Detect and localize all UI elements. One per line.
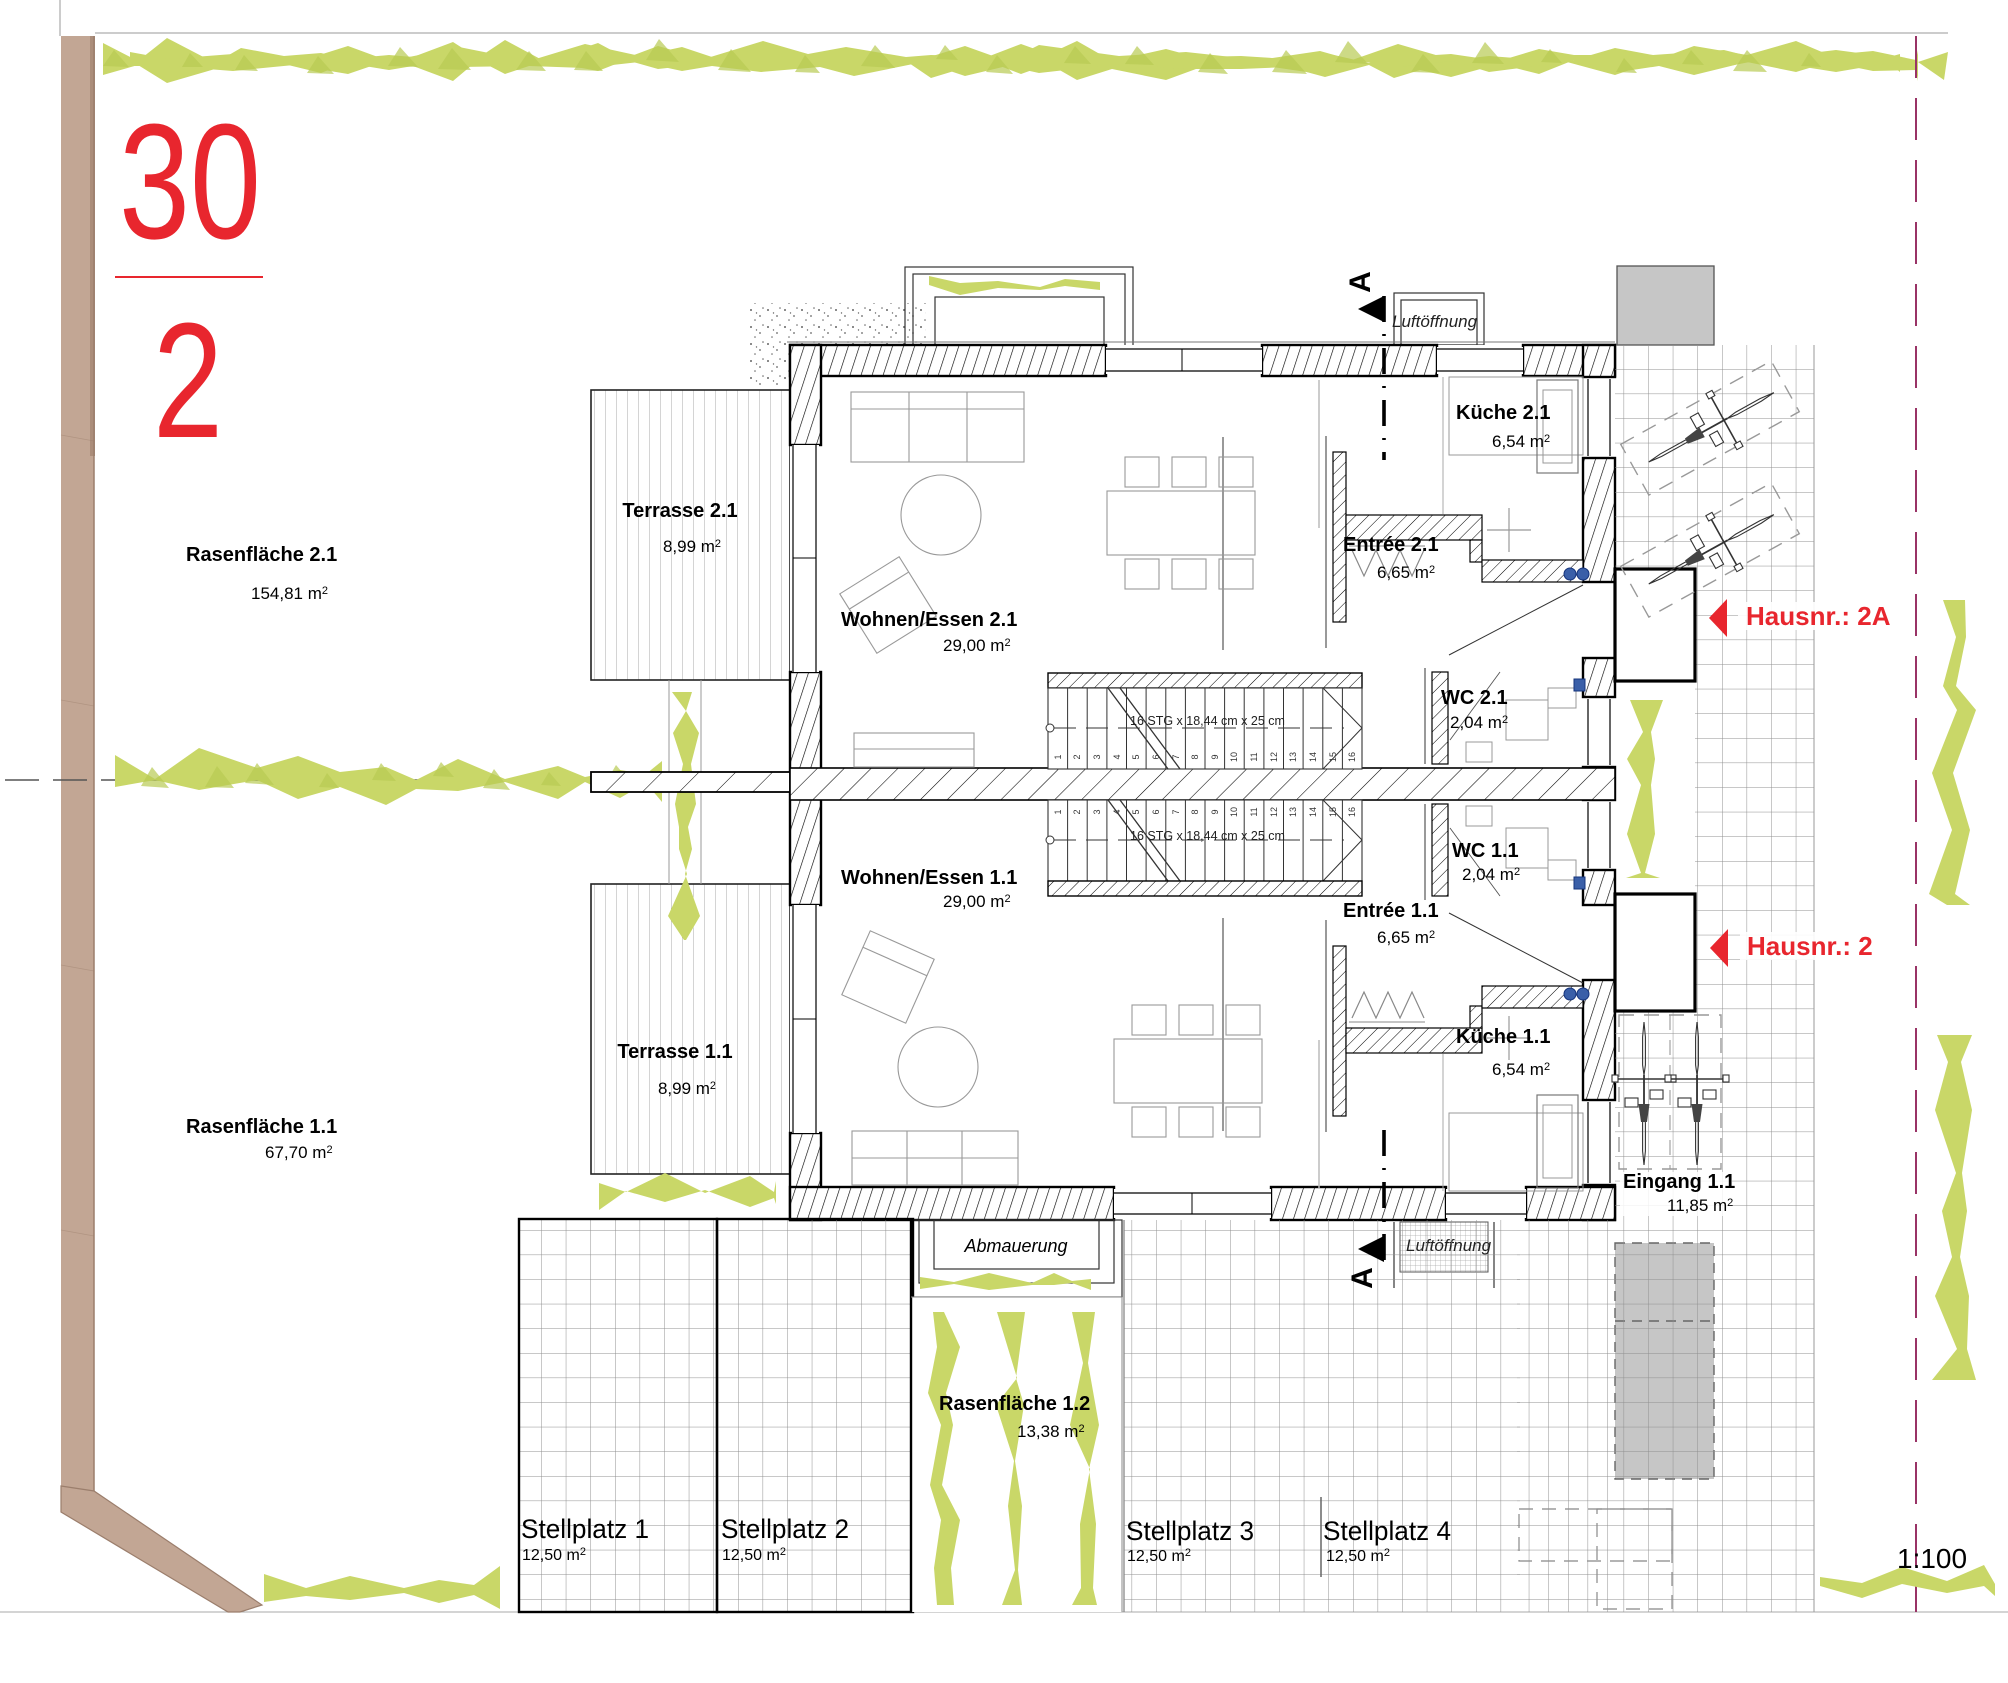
svg-text:6,54 m2: 6,54 m2: [1492, 1060, 1550, 1079]
svg-text:9: 9: [1210, 754, 1220, 759]
svg-text:A: A: [1344, 271, 1377, 293]
svg-text:3: 3: [1092, 754, 1102, 759]
svg-text:12,50 m2: 12,50 m2: [522, 1546, 586, 1564]
svg-text:14: 14: [1308, 807, 1318, 817]
svg-text:Wohnen/Essen 2.1: Wohnen/Essen 2.1: [841, 609, 1017, 631]
svg-text:Küche 1.1: Küche 1.1: [1456, 1026, 1550, 1048]
svg-text:2: 2: [153, 289, 223, 472]
svg-text:14: 14: [1308, 752, 1318, 762]
svg-text:6,65 m2: 6,65 m2: [1377, 563, 1435, 582]
svg-text:Stellplatz 4: Stellplatz 4: [1323, 1516, 1451, 1546]
svg-text:Wohnen/Essen 1.1: Wohnen/Essen 1.1: [841, 867, 1017, 889]
svg-text:8: 8: [1190, 754, 1200, 759]
svg-text:Hausnr.: 2A: Hausnr.: 2A: [1746, 601, 1891, 631]
svg-text:30: 30: [119, 90, 261, 273]
svg-text:11,85 m2: 11,85 m2: [1667, 1196, 1733, 1215]
svg-text:5: 5: [1131, 809, 1141, 814]
svg-text:2,04 m2: 2,04 m2: [1450, 713, 1508, 732]
svg-text:8,99 m2: 8,99 m2: [663, 537, 721, 556]
svg-text:16 STG x 18,44 cm x 25 cm: 16 STG x 18,44 cm x 25 cm: [1130, 714, 1285, 728]
svg-text:2: 2: [1072, 809, 1082, 814]
svg-text:7: 7: [1171, 809, 1181, 814]
svg-text:6,65 m2: 6,65 m2: [1377, 928, 1435, 947]
svg-text:15: 15: [1328, 807, 1338, 817]
svg-text:1:100: 1:100: [1897, 1543, 1967, 1574]
svg-text:3: 3: [1092, 809, 1102, 814]
svg-text:Stellplatz 1: Stellplatz 1: [521, 1514, 649, 1544]
svg-text:12: 12: [1269, 752, 1279, 762]
svg-text:6,54 m2: 6,54 m2: [1492, 432, 1550, 451]
svg-text:Rasenfläche 1.2: Rasenfläche 1.2: [939, 1393, 1090, 1415]
svg-text:Abmauerung: Abmauerung: [963, 1236, 1067, 1256]
svg-text:2,04 m2: 2,04 m2: [1462, 865, 1520, 884]
svg-text:Hausnr.: 2: Hausnr.: 2: [1747, 931, 1873, 961]
svg-text:11: 11: [1249, 807, 1259, 816]
svg-text:67,70 m2: 67,70 m2: [265, 1143, 333, 1162]
svg-text:Stellplatz 2: Stellplatz 2: [721, 1514, 849, 1544]
svg-text:10: 10: [1229, 752, 1239, 762]
svg-text:Rasenfläche 2.1: Rasenfläche 2.1: [186, 544, 337, 566]
svg-text:8: 8: [1190, 809, 1200, 814]
svg-text:4: 4: [1112, 754, 1122, 759]
svg-text:1: 1: [1053, 754, 1063, 759]
svg-text:15: 15: [1328, 752, 1338, 762]
svg-text:1: 1: [1053, 809, 1063, 814]
svg-text:12,50 m2: 12,50 m2: [1127, 1547, 1191, 1565]
svg-text:8,99 m2: 8,99 m2: [658, 1079, 716, 1098]
svg-text:12,50 m2: 12,50 m2: [1326, 1547, 1390, 1565]
svg-text:29,00 m2: 29,00 m2: [943, 636, 1011, 655]
svg-text:Terrasse 1.1: Terrasse 1.1: [617, 1041, 732, 1063]
svg-text:29,00 m2: 29,00 m2: [943, 892, 1011, 911]
svg-text:2: 2: [1072, 754, 1082, 759]
svg-text:Rasenfläche 1.1: Rasenfläche 1.1: [186, 1116, 337, 1138]
svg-text:Küche 2.1: Küche 2.1: [1456, 402, 1550, 424]
svg-text:10: 10: [1229, 807, 1239, 817]
svg-text:9: 9: [1210, 809, 1220, 814]
svg-text:16: 16: [1347, 807, 1357, 817]
svg-text:Terrasse 2.1: Terrasse 2.1: [622, 500, 737, 522]
svg-text:WC 1.1: WC 1.1: [1452, 840, 1519, 862]
svg-text:12: 12: [1269, 807, 1279, 817]
svg-text:WC 2.1: WC 2.1: [1441, 687, 1508, 709]
svg-text:11: 11: [1249, 752, 1259, 761]
svg-text:Luftöffnung: Luftöffnung: [1392, 312, 1478, 331]
svg-text:6: 6: [1151, 809, 1161, 814]
svg-text:16 STG x 18,44 cm x 25 cm: 16 STG x 18,44 cm x 25 cm: [1130, 829, 1285, 843]
svg-text:13,38 m2: 13,38 m2: [1017, 1422, 1085, 1441]
svg-text:5: 5: [1131, 754, 1141, 759]
svg-text:13: 13: [1288, 752, 1298, 762]
svg-text:Stellplatz 3: Stellplatz 3: [1126, 1516, 1254, 1546]
svg-text:154,81 m2: 154,81 m2: [251, 584, 328, 603]
svg-text:13: 13: [1288, 807, 1298, 817]
svg-text:12,50 m2: 12,50 m2: [722, 1546, 786, 1564]
svg-text:16: 16: [1347, 752, 1357, 762]
svg-text:Entrée 1.1: Entrée 1.1: [1343, 900, 1439, 922]
svg-text:Entrée 2.1: Entrée 2.1: [1343, 534, 1439, 556]
svg-text:A: A: [1346, 1267, 1379, 1289]
svg-text:Eingang 1.1: Eingang 1.1: [1623, 1171, 1735, 1193]
